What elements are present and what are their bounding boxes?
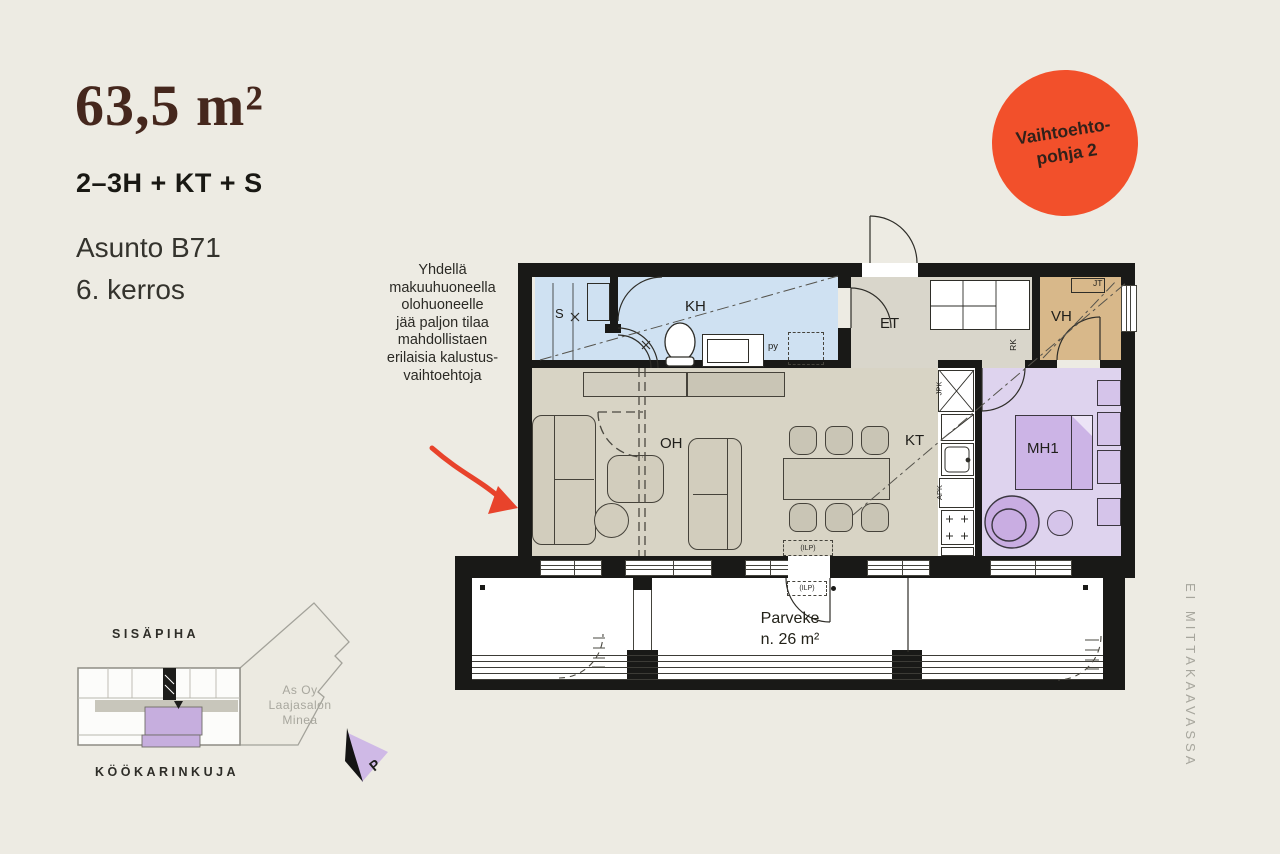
wall-bathroom-hall-upper [838,277,851,288]
company-line: Minea [248,713,352,728]
dining-chair [825,503,853,532]
sofa-cushion-line [554,479,594,480]
sauna-heater [587,283,610,321]
wall-kitchen-stub [938,360,982,368]
balcony-wall-right [1103,578,1125,690]
vanity-basin [707,339,749,363]
wall-bathroom-hall-lower [838,328,851,368]
balcony-marker-dot [831,586,836,591]
window [867,560,930,576]
label-laundry: py [768,341,778,352]
window-side [1121,285,1137,332]
bedroom-wardrobe [1097,498,1121,526]
wall-sauna-divider [610,277,618,330]
dining-chair [789,503,817,532]
sofa-middle [688,438,742,550]
alternative-layout-badge: Vaihtoehto- pohja 2 [981,59,1148,226]
bathroom-vanity [702,334,764,367]
courtyard-label: SISÄPIHA [112,627,199,641]
label-hall: ET [880,315,899,332]
bedroom-wardrobe [1097,412,1121,446]
sofa-cushion-line [693,494,727,495]
balcony-railing-base [472,680,1103,690]
dishwasher [939,478,974,508]
company-line: Laajasalon [248,698,352,713]
sideboard-right [687,372,785,397]
stove [941,510,974,545]
wall-hall-closet [1032,277,1040,368]
label-living-room: OH [660,435,683,452]
room-configuration: 2–3H + KT + S [76,168,263,199]
label-closet: VH [1051,308,1072,325]
balcony-divider-cap [633,578,652,590]
apartment-floor: 6. kerros [76,274,185,306]
bed-fold [1072,416,1092,436]
wall-bedroom-top-b [1100,360,1121,368]
label-dishwasher: APK [935,485,944,500]
bedroom-wardrobe [1097,380,1121,406]
dining-chair [825,426,853,455]
bedroom-side-table [1047,510,1073,536]
company-line: As Oy [248,683,352,698]
label-bedroom: MH1 [1027,440,1059,457]
window [990,560,1072,576]
floorplan-poster: { "header": { "area": "63,5 m²", "room_c… [0,0,1280,854]
oven [941,414,974,441]
dining-chair [861,426,889,455]
wall-bedroom-top-a [1025,360,1057,368]
heat-pump-reservation-balcony: (ILP) [787,581,827,596]
bedroom-wardrobe [1097,450,1121,484]
balcony-railing [472,655,1103,680]
scale-note: EI MITTAKAAVASSA [1183,583,1198,768]
window [745,560,790,576]
heat-pump-label: (ILP) [800,545,815,552]
label-kitchen: KT [905,432,924,449]
balcony-door-opening [788,556,830,578]
wall-kitchen-bedroom [975,368,982,556]
sofa-left [532,415,596,545]
dining-chair [861,503,889,532]
label-bathroom: KH [685,298,706,315]
floor-plan: (ILP) (ILP) [455,210,1135,690]
sink-unit [941,443,974,476]
balcony-marker-dot [1083,585,1088,590]
label-jt: JT [1093,278,1102,288]
label-rk: RK [1008,339,1018,351]
window [540,560,602,576]
fridge-freezer [938,370,974,412]
washer-reservation [788,332,824,365]
dining-chair [789,426,817,455]
badge-text: Vaihtoehto- pohja 2 [1014,113,1115,173]
kitchen-cabinet [941,547,974,556]
entrance-opening [862,263,918,277]
coffee-table [607,455,664,503]
heat-pump-label: (ILP) [799,585,814,592]
balcony-marker-dot [480,585,485,590]
apartment-number: Asunto B71 [76,232,221,264]
balcony-label: Parveke n. 26 m² [695,608,885,650]
apartment-area: 63,5 m² [75,72,264,139]
balcony-name: Parveke [695,608,885,629]
window [625,560,712,576]
dining-table [783,458,890,500]
hall-closet-unit [930,280,1030,330]
wall-sauna-cap [605,324,621,333]
site-plan: SISÄPIHA KÖÖKARINKUJA As Oy Laajasalon M… [70,595,415,810]
label-sauna: S [555,306,564,321]
sideboard-left [583,372,687,397]
wall-top [518,263,1135,277]
balcony-wall-left [455,556,472,690]
wall-left [518,263,532,578]
label-fridge: JPK [934,382,943,396]
heat-pump-reservation: (ILP) [783,540,833,556]
balcony-area: n. 26 m² [695,629,885,650]
side-table-round [594,503,629,538]
housing-company-label: As Oy Laajasalon Minea [248,683,352,728]
street-label: KÖÖKARINKUJA [95,765,239,779]
